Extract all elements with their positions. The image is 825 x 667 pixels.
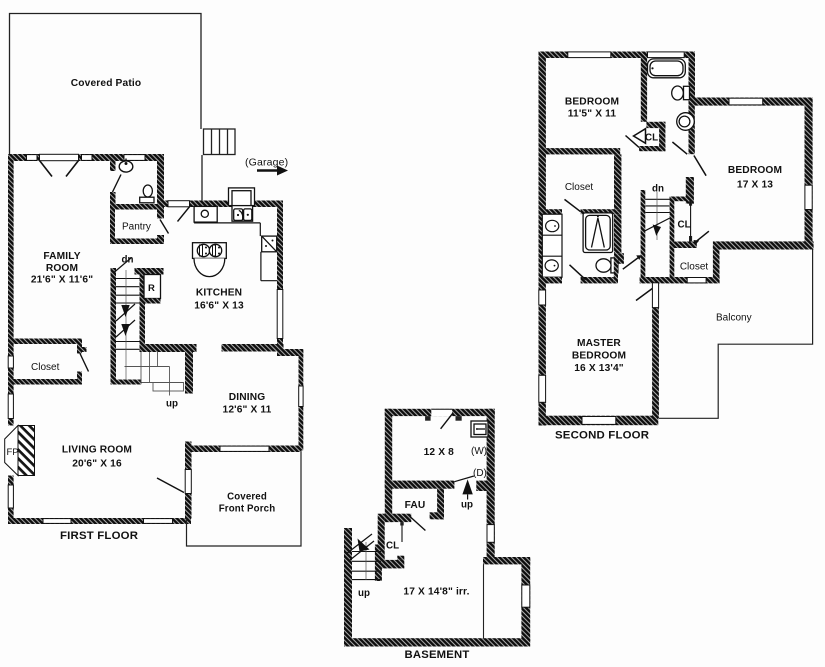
svg-text:FP: FP [7,447,19,458]
svg-text:BASEMENT: BASEMENT [405,649,470,661]
svg-text:16'6" X 13: 16'6" X 13 [194,301,244,312]
svg-text:12'6" X 11: 12'6" X 11 [223,405,272,416]
svg-text:MASTER: MASTER [577,338,621,349]
svg-text:dn: dn [652,184,664,195]
svg-text:Covered Patio: Covered Patio [71,78,141,89]
svg-text:up: up [461,500,473,511]
svg-text:Closet: Closet [31,362,60,373]
svg-text:SECOND FLOOR: SECOND FLOOR [555,430,649,442]
svg-text:21'6" X 11'6": 21'6" X 11'6" [31,275,93,286]
svg-text:20'6" X 16: 20'6" X 16 [72,459,122,470]
svg-text:11'5" X 11: 11'5" X 11 [568,109,617,120]
svg-text:BEDROOM: BEDROOM [572,351,626,362]
svg-text:Front Porch: Front Porch [219,504,276,515]
svg-text:BEDROOM: BEDROOM [565,97,619,108]
svg-text:FIRST FLOOR: FIRST FLOOR [60,530,138,542]
svg-text:up: up [358,588,370,599]
svg-text:(D): (D) [473,468,487,479]
svg-text:Closet: Closet [680,262,709,273]
svg-text:R: R [148,283,155,294]
svg-text:(Garage): (Garage) [245,157,288,169]
svg-text:Balcony: Balcony [716,313,752,324]
svg-text:DINING: DINING [229,392,266,403]
svg-text:BEDROOM: BEDROOM [728,165,782,176]
svg-text:17 X 14'8" irr.: 17 X 14'8" irr. [403,587,469,598]
svg-text:up: up [166,399,178,410]
svg-text:LIVING ROOM: LIVING ROOM [62,445,132,456]
svg-text:FAMILY: FAMILY [43,251,80,262]
svg-text:17 X 13: 17 X 13 [737,180,773,191]
svg-text:16 X 13'4": 16 X 13'4" [574,363,624,374]
svg-text:Closet: Closet [565,182,594,193]
svg-text:Covered: Covered [227,492,267,503]
svg-text:FAU: FAU [405,500,426,511]
svg-text:ROOM: ROOM [46,263,78,274]
svg-text:CL: CL [678,220,691,231]
svg-text:KITCHEN: KITCHEN [196,288,242,299]
svg-text:CL: CL [386,541,399,552]
svg-text:12 X 8: 12 X 8 [424,447,455,458]
svg-text:Pantry: Pantry [122,222,151,233]
svg-text:CL: CL [645,133,658,144]
svg-text:(W): (W) [471,446,487,457]
